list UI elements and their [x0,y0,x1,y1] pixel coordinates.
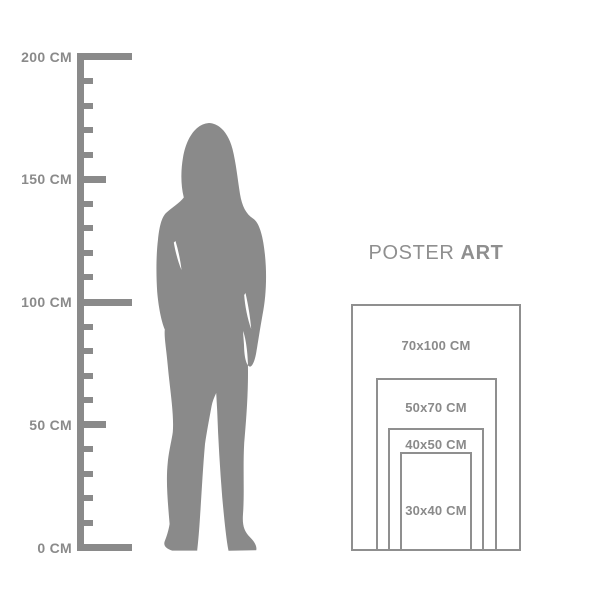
poster-size-frames: 70x100 CM50x70 CM40x50 CM30x40 CM [0,0,600,600]
poster-size-label-70x100: 70x100 CM [353,339,518,353]
poster-size-label-40x50: 40x50 CM [390,438,483,452]
poster-size-label-50x70: 50x70 CM [378,401,495,415]
poster-frame-30x40: 30x40 CM [400,452,473,551]
poster-size-guide-diagram: 200 CM150 CM100 CM50 CM0 CM POSTER ART 7… [0,0,600,600]
poster-size-label-30x40: 30x40 CM [402,504,471,518]
